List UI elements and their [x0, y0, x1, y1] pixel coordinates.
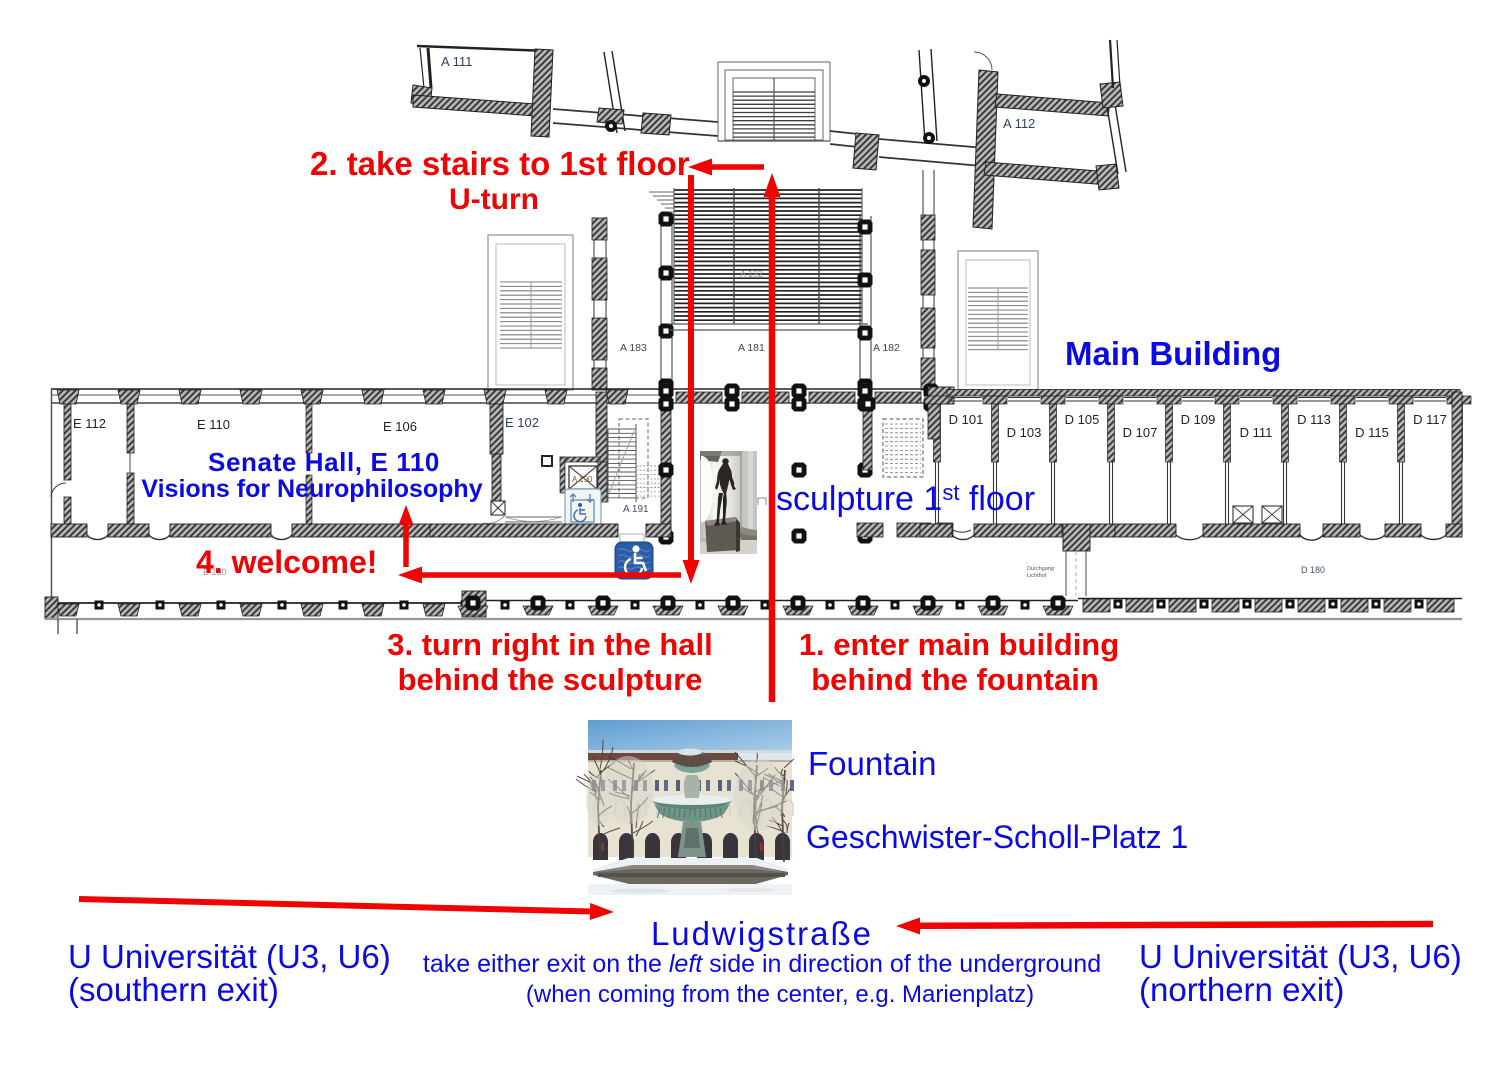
svg-text:A 112: A 112	[1003, 116, 1035, 131]
svg-text:(southern exit): (southern exit)	[68, 971, 279, 1008]
svg-text:4. welcome!: 4. welcome!	[196, 544, 377, 580]
svg-text:U Universität (U3, U6): U Universität (U3, U6)	[1139, 938, 1462, 975]
svg-text:D 107: D 107	[1123, 425, 1158, 440]
svg-text:D 111: D 111	[1240, 425, 1273, 440]
svg-text:E 106: E 106	[383, 419, 417, 434]
svg-text:behind the sculpture: behind the sculpture	[398, 662, 703, 697]
svg-text:A 192: A 192	[740, 269, 763, 279]
svg-text:1. enter main building: 1. enter main building	[799, 627, 1119, 662]
svg-text:U-turn: U-turn	[449, 183, 539, 216]
svg-text:A 111: A 111	[441, 54, 472, 69]
svg-text:D 109: D 109	[1181, 412, 1216, 427]
svg-text:D 103: D 103	[1007, 425, 1042, 440]
svg-text:D 105: D 105	[1065, 412, 1100, 427]
svg-text:E 102: E 102	[505, 415, 539, 430]
svg-text:take either exit on the left s: take either exit on the left side in dir…	[423, 950, 1101, 978]
svg-text:(northern exit): (northern exit)	[1139, 971, 1344, 1008]
svg-text:2. take stairs to 1st floor: 2. take stairs to 1st floor	[310, 145, 690, 182]
svg-text:A 181: A 181	[738, 342, 765, 354]
svg-text:behind the fountain: behind the fountain	[811, 662, 1099, 697]
svg-text:Durchgang: Durchgang	[1027, 566, 1054, 572]
svg-text:A 183: A 183	[620, 342, 647, 354]
svg-text:D 115: D 115	[1355, 425, 1389, 440]
svg-text:(when coming from the center,: (when coming from the center, e.g. Marie…	[526, 981, 1034, 1008]
svg-text:sculpture 1st floor: sculpture 1st floor	[776, 480, 1035, 518]
svg-text:A 182: A 182	[873, 342, 900, 354]
svg-text:A 191: A 191	[623, 504, 649, 515]
svg-text:3. turn right in the hall: 3. turn right in the hall	[387, 627, 713, 662]
svg-text:D 117: D 117	[1413, 412, 1447, 427]
svg-text:Senate Hall, E 110: Senate Hall, E 110	[208, 447, 440, 477]
svg-text:D 101: D 101	[949, 412, 984, 427]
svg-text:E 110: E 110	[197, 417, 230, 432]
svg-text:Geschwister-Scholl-Platz 1: Geschwister-Scholl-Platz 1	[806, 819, 1188, 855]
svg-text:Fountain: Fountain	[808, 745, 936, 782]
svg-text:Visions for Neurophilosophy: Visions for Neurophilosophy	[141, 475, 482, 503]
svg-text:Lichthof: Lichthof	[1027, 573, 1047, 579]
svg-text:D 180: D 180	[1301, 565, 1325, 575]
svg-text:E 112: E 112	[73, 416, 106, 431]
svg-text:U Universität (U3, U6): U Universität (U3, U6)	[68, 938, 391, 975]
svg-text:Ludwigstraße: Ludwigstraße	[651, 915, 873, 952]
svg-text:D 113: D 113	[1297, 412, 1331, 427]
svg-text:A 190: A 190	[572, 475, 593, 484]
svg-text:Main Building: Main Building	[1065, 335, 1281, 372]
